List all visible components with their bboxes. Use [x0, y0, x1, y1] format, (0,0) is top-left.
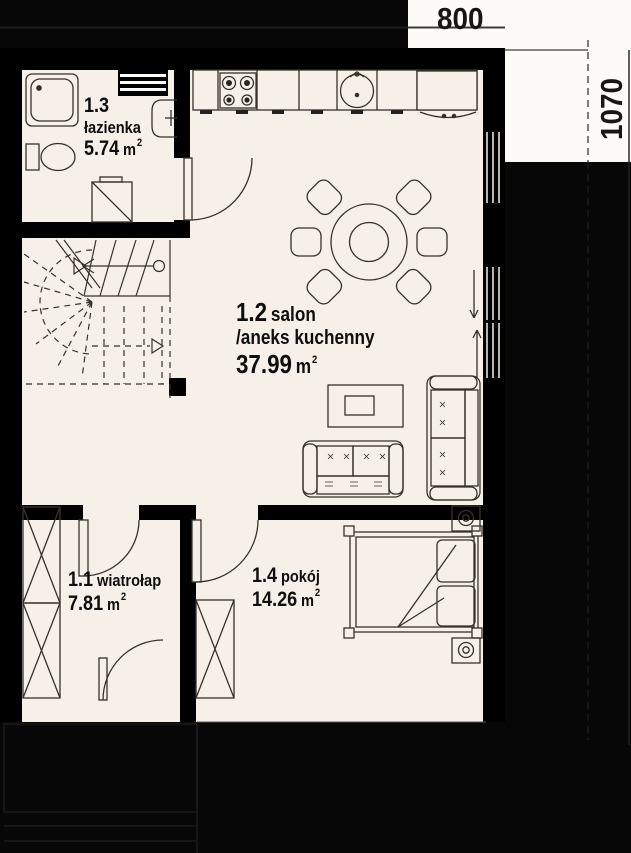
room-id: 1.3 [84, 94, 109, 117]
room-label-bathroom: 1.3 łazienka 5.74 m2 [84, 94, 142, 161]
fridge-icon [417, 71, 477, 118]
room-id: 1.4 [252, 564, 277, 587]
room-label-living: 1.2 salon /aneks kuchenny 37.99 m2 [236, 298, 375, 379]
dimension-height-label: 1070 [594, 78, 630, 140]
room-name: pokój [281, 567, 320, 586]
room-label-room: 1.4 pokój 14.26 m2 [252, 564, 320, 611]
room-area: 5.74 [84, 137, 119, 160]
room-area: 7.81 [68, 592, 103, 615]
room-label-vestibule: 1.1 wiatrołap 7.81 m2 [68, 568, 161, 615]
room-area: 37.99 [236, 349, 292, 379]
room-name: wiatrołap [97, 571, 161, 590]
floor-interior [22, 70, 483, 722]
room-id: 1.1 [68, 568, 93, 591]
dining-table-icon [331, 204, 407, 280]
floorplan-canvas: 800 1070 1.3 łazienka 5.74 m2 1.2 salon … [0, 0, 631, 853]
room-name: salon [271, 304, 316, 326]
room-id: 1.2 [236, 297, 267, 327]
room-name-2: /aneks kuchenny [236, 327, 375, 349]
dimension-width-label: 800 [437, 1, 484, 37]
vent-shaft [118, 70, 168, 96]
room-name: łazienka [84, 118, 141, 137]
building [0, 48, 505, 722]
terrace-outline [4, 722, 197, 853]
room-area: 14.26 [252, 588, 297, 611]
